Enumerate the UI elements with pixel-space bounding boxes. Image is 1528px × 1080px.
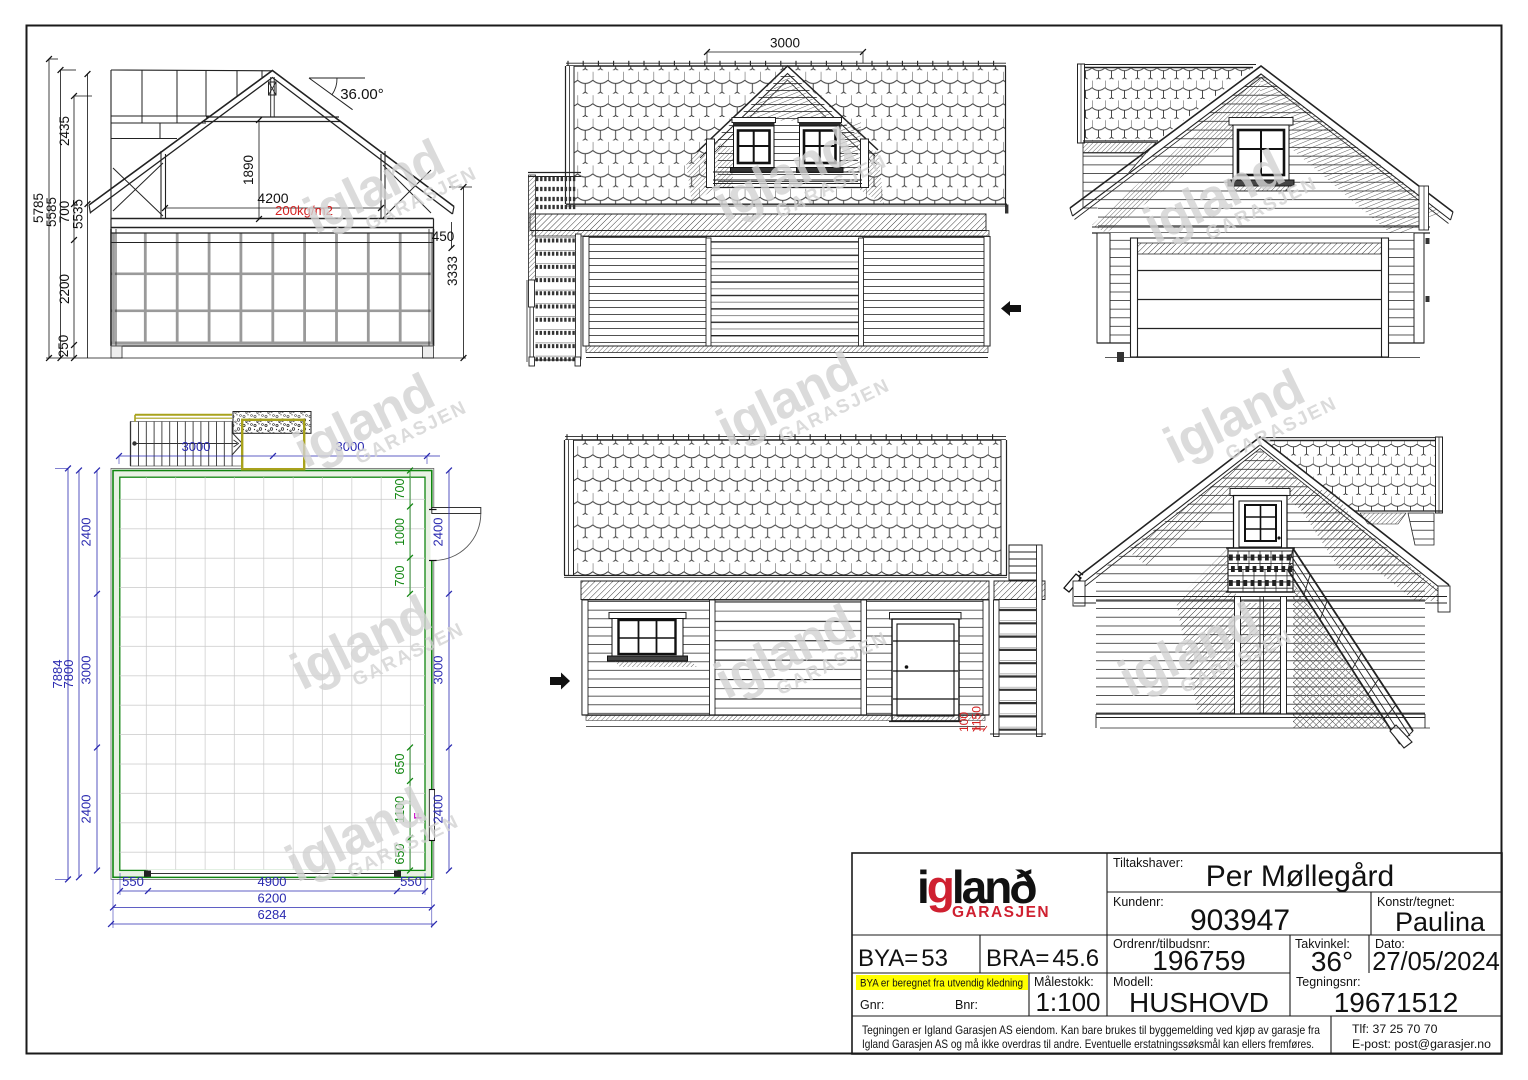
svg-text:3000: 3000 bbox=[79, 656, 94, 685]
svg-text:550: 550 bbox=[400, 874, 422, 889]
svg-text:Bnr:: Bnr: bbox=[955, 998, 978, 1012]
svg-text:36.00°: 36.00° bbox=[340, 86, 384, 103]
svg-text:450: 450 bbox=[432, 229, 455, 244]
svg-text:Tegningen er Igland Garasjen A: Tegningen er Igland Garasjen AS eiendom.… bbox=[862, 1023, 1320, 1037]
svg-text:3000: 3000 bbox=[431, 656, 446, 685]
svg-text:BRA=45.6: BRA=45.6 bbox=[986, 945, 1099, 972]
svg-text:Gnr:: Gnr: bbox=[860, 998, 884, 1012]
svg-text:Paulina: Paulina bbox=[1395, 907, 1486, 937]
svg-text:196759: 196759 bbox=[1152, 945, 1245, 976]
svg-text:Tlf: 37 25 70 70: Tlf: 37 25 70 70 bbox=[1352, 1022, 1438, 1036]
svg-text:6284: 6284 bbox=[258, 907, 287, 922]
svg-text:6200: 6200 bbox=[258, 891, 287, 906]
svg-text:2400: 2400 bbox=[79, 518, 94, 547]
svg-text:HUSHOVD: HUSHOVD bbox=[1129, 987, 1269, 1018]
svg-text:2400: 2400 bbox=[431, 518, 446, 547]
svg-text:700: 700 bbox=[393, 566, 407, 587]
svg-text:5535: 5535 bbox=[71, 199, 86, 229]
svg-text:3000: 3000 bbox=[182, 439, 211, 454]
svg-text:4900: 4900 bbox=[258, 874, 287, 889]
svg-text:250: 250 bbox=[56, 335, 71, 358]
svg-text:27/05/2024: 27/05/2024 bbox=[1372, 948, 1500, 976]
svg-text:E-post: post@garasjer.no: E-post: post@garasjer.no bbox=[1352, 1037, 1491, 1051]
svg-text:Kundenr:: Kundenr: bbox=[1113, 895, 1164, 909]
svg-text:1000: 1000 bbox=[393, 518, 407, 546]
svg-text:1150: 1150 bbox=[970, 706, 984, 732]
svg-text:BYA=53: BYA=53 bbox=[858, 945, 948, 972]
svg-text:2400: 2400 bbox=[79, 795, 94, 824]
svg-text:700: 700 bbox=[393, 479, 407, 500]
svg-text:1:100: 1:100 bbox=[1035, 987, 1100, 1017]
svg-text:550: 550 bbox=[122, 874, 144, 889]
svg-text:Igland Garasjen AS og må ikke: Igland Garasjen AS og må ikke overdras t… bbox=[862, 1037, 1314, 1051]
svg-text:7800: 7800 bbox=[61, 660, 76, 689]
svg-text:2200: 2200 bbox=[57, 274, 72, 304]
svg-text:650: 650 bbox=[393, 754, 407, 775]
svg-text:36°: 36° bbox=[1311, 946, 1353, 977]
svg-text:1890: 1890 bbox=[241, 155, 256, 185]
svg-text:Per Møllegård: Per Møllegård bbox=[1206, 860, 1394, 893]
svg-text:2435: 2435 bbox=[57, 116, 72, 146]
svg-text:BYA er beregnet fra utvendig k: BYA er beregnet fra utvendig kledning bbox=[860, 978, 1023, 990]
svg-text:903947: 903947 bbox=[1190, 904, 1290, 937]
svg-text:GARASJEN: GARASJEN bbox=[952, 904, 1050, 921]
svg-text:Tiltakshaver:: Tiltakshaver: bbox=[1113, 856, 1183, 870]
svg-text:19671512: 19671512 bbox=[1334, 987, 1459, 1018]
svg-text:3000: 3000 bbox=[770, 36, 800, 51]
svg-text:3333: 3333 bbox=[445, 256, 460, 286]
